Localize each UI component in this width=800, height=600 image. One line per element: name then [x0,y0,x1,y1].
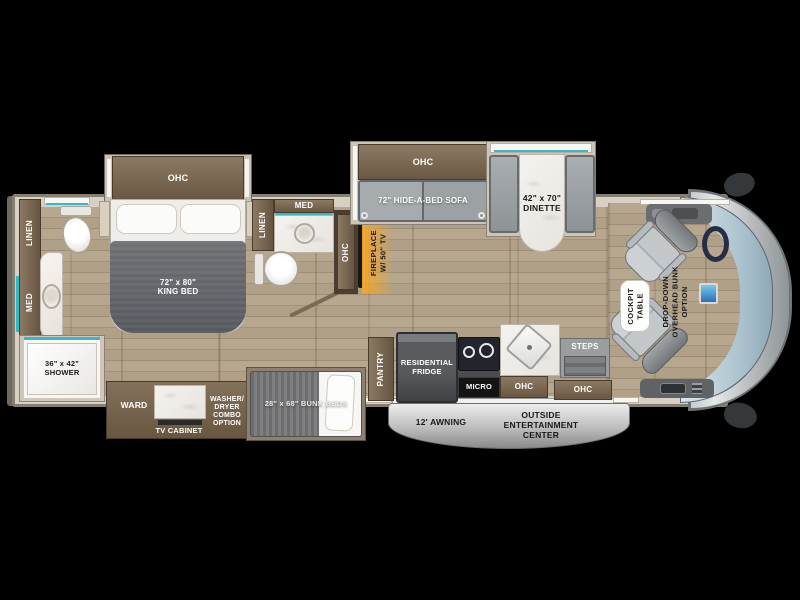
rear-med-label: MED [25,293,35,312]
cockpit-table-label: COCKPIT TABLE [626,288,645,325]
floorplan-canvas: 12' AWNING OUTSIDE ENTERTAINMENT CENTER … [0,0,800,600]
micro-label: MICRO [466,383,492,392]
bed-slide-rail-right [244,158,250,198]
dash-bottom-buttons [692,383,702,394]
awning-label: 12' AWNING [398,414,484,430]
microwave: MICRO [458,377,500,398]
dropdown-bunk-option: DROP-DOWN OVERHEAD BUNK OPTION [652,248,698,356]
entry-ohc-label: OHC [574,385,592,394]
ward-label: WARD [110,398,158,412]
mid-linen-cabinet: LINEN [252,199,274,251]
nightstand-left [99,201,110,237]
king-bed-pillow-right [180,204,241,234]
pantry-cabinet: PANTRY [368,337,394,401]
shower-window-accent [24,337,100,340]
mid-toilet-bowl [263,251,299,287]
rear-linen-label: LINEN [25,220,35,246]
steering-wheel [702,226,729,262]
shower-pan: 36" x 42" SHOWER [24,340,100,398]
sofa-hinge-right [478,212,485,219]
kitchen-ohc-label: OHC [515,382,533,391]
living-ohc-label: OHC [341,243,351,262]
kitchen-ohc: OHC [500,376,548,398]
kitchen-faucet [527,345,532,350]
shower-label: 36" x 42" SHOWER [45,360,80,378]
tv-strip [158,420,202,425]
bedroom-ohc-cabinet: OHC [112,156,244,200]
king-bed-label: 72" x 80" KING BED [158,278,199,297]
mid-med-label: MED [295,201,313,210]
king-bed-blanket: 72" x 80" KING BED [110,241,246,333]
cooktop-burner-right [479,343,494,358]
pantry-label: PANTRY [376,352,386,386]
cockpit-table: COCKPIT TABLE [620,280,650,332]
dropdown-bunk-label: DROP-DOWN OVERHEAD BUNK OPTION [661,266,689,337]
sofa-ohc-label: OHC [413,157,434,168]
cooktop-burner-left [463,346,475,358]
entry-ohc: OHC [554,380,612,400]
outside-entertainment-label: OUTSIDE ENTERTAINMENT CENTER [488,406,594,444]
rear-med-cabinet: MED [19,278,41,326]
king-bed-pillow-left [116,204,177,234]
rear-toilet-tank [60,206,92,216]
sofa-ohc-cabinet: OHC [358,144,488,180]
bottom-window-right [613,397,639,403]
dinette-label: 42" x 70" DINETTE [523,193,561,213]
rear-linen-cabinet: LINEN [19,203,41,263]
sofa-hinge-left [361,212,368,219]
steps-label: STEPS [562,341,608,353]
steps-treads [564,356,606,376]
rear-sink [42,284,61,309]
sofa-label: 72" HIDE-A-BED SOFA [378,196,468,205]
cockpit-monitor [699,283,718,304]
residential-fridge: RESIDENTIAL FRIDGE [396,332,458,403]
mid-linen-label: LINEN [258,212,268,238]
washer-dryer-label: WASHER/ DRYER COMBO OPTION [206,388,248,436]
bedroom-window-accent [46,203,88,205]
bunk-beds-label: 28" x 68" BUNK BEDS [250,398,362,410]
dinette-bench-right [565,155,595,233]
fireplace-label: FIREPLACE W/ 50" TV [369,230,388,276]
tv-cabinet-counter [154,385,206,419]
bedroom-ohc-label: OHC [168,173,189,184]
living-ohc-cabinet: OHC [337,214,355,290]
mid-sink [294,223,315,244]
tv-cabinet-label: TV CABINET [146,426,212,436]
dinette-window-accent [494,150,588,152]
dash-bottom-screen [660,383,686,394]
dinette-bench-left [489,155,519,233]
fridge-label: RESIDENTIAL FRIDGE [401,359,453,377]
dinette-table: 42" x 70" DINETTE [519,154,565,252]
mid-med-cabinet: MED [274,199,334,213]
hide-a-bed-sofa: 72" HIDE-A-BED SOFA [358,180,488,222]
